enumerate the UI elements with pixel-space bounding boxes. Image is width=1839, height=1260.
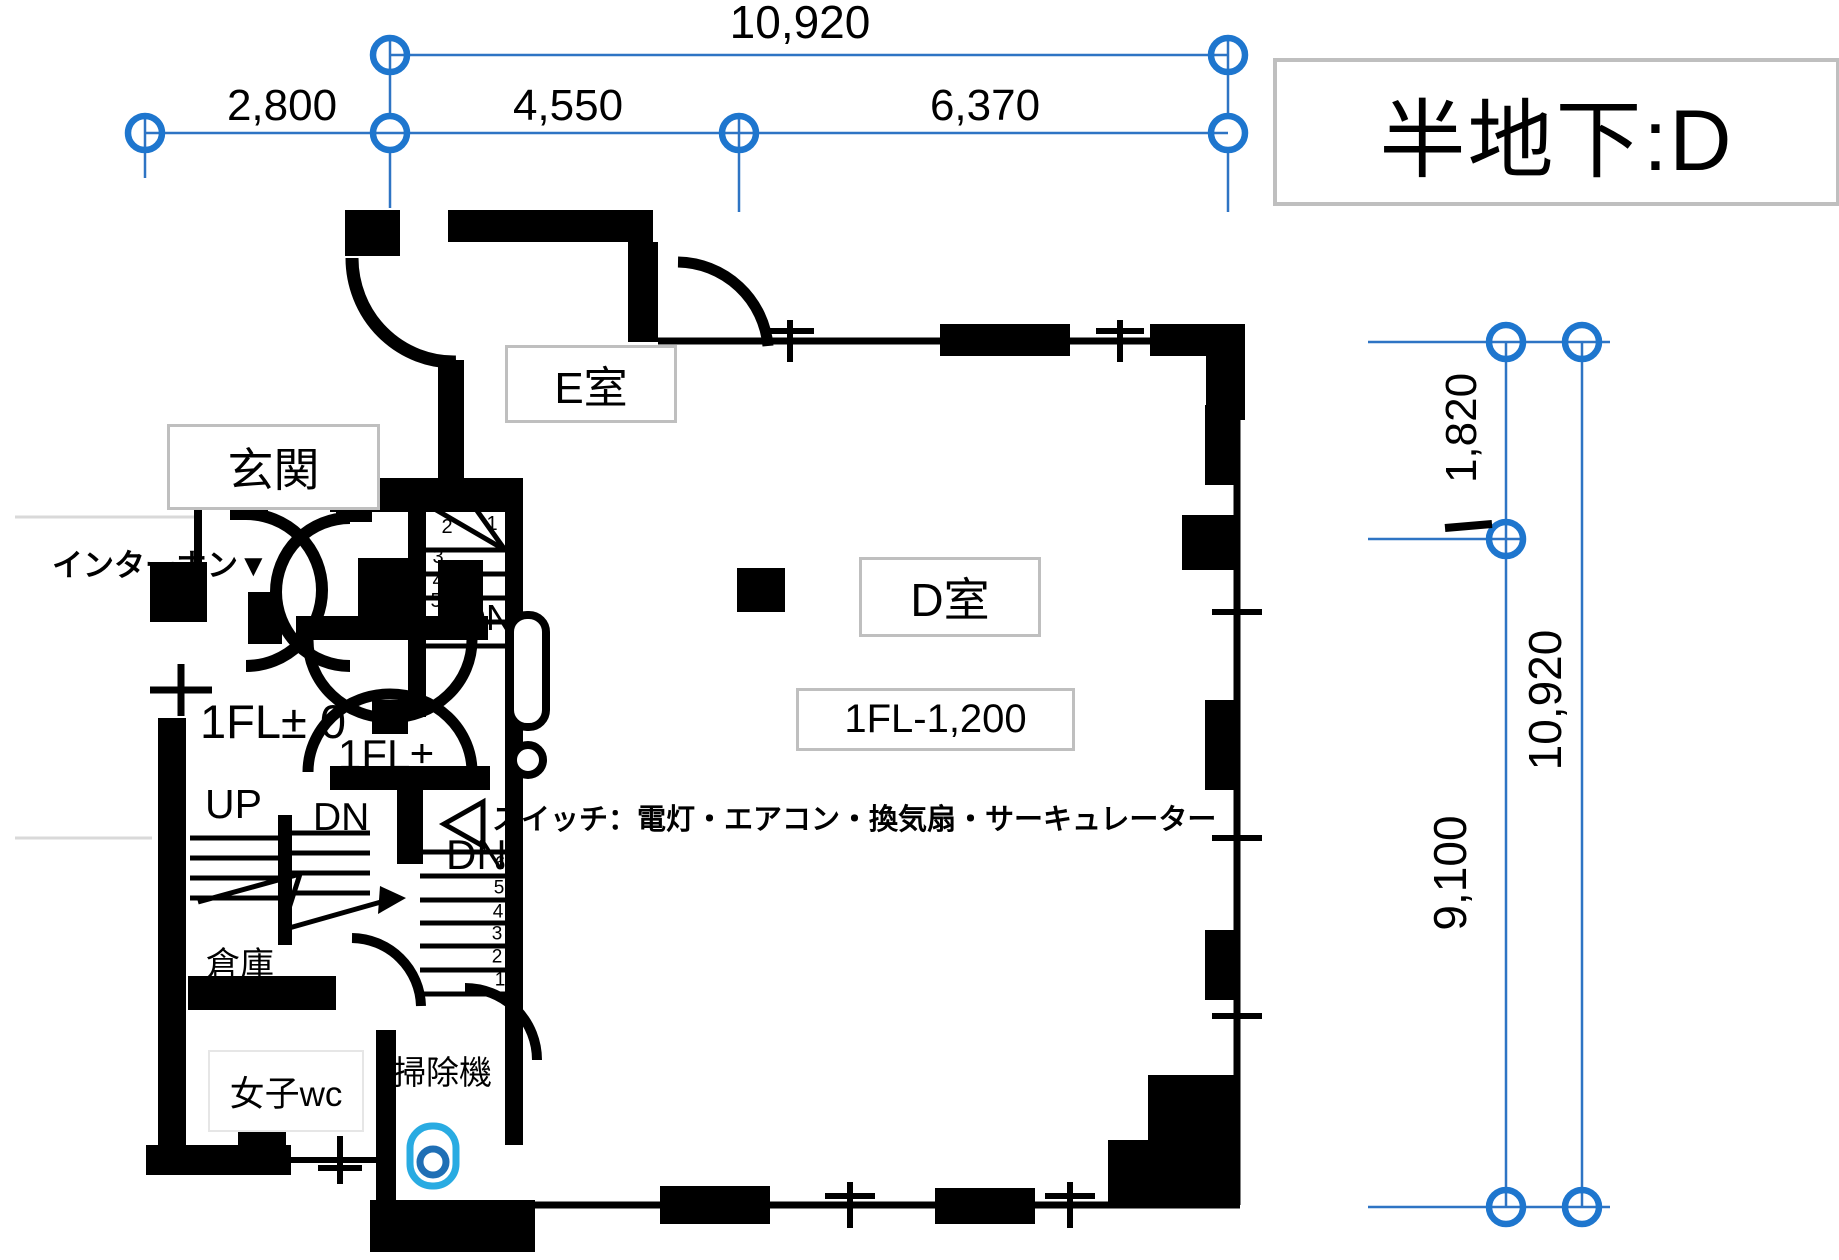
room-e-text: E室: [554, 352, 627, 416]
lower-stair-number: 6: [495, 855, 506, 874]
floor-plan: 10,920 2,800 4,550 6,370 半地下:D 1,820 9,1…: [0, 0, 1839, 1260]
dim-segment-4550: 4,550: [513, 84, 623, 128]
dn-label-upper: DN: [460, 600, 512, 636]
lower-stair-number: 5: [494, 879, 505, 898]
page-title: 半地下:D: [1380, 70, 1734, 195]
dim-right-9100: 9,100: [1427, 815, 1473, 930]
door-leaf-icon: [510, 615, 546, 775]
lower-stair-number: 4: [493, 903, 504, 922]
upper-stair-number: 1: [486, 514, 497, 534]
dimension-tick: [1445, 524, 1492, 528]
vacuum-symbol-icon: [410, 1126, 456, 1186]
floor-level-label-d: 1FL-1,200: [796, 688, 1075, 751]
switch-note-label: スイッチ：電灯・エアコン・換気扇・サーキュレーター: [492, 806, 1216, 835]
floor-level-vestibule-label: 1FL±: [338, 734, 433, 776]
room-d-text: D室: [910, 564, 989, 630]
upper-stair-number: 2: [441, 517, 452, 537]
dim-segment-6370: 6,370: [930, 84, 1040, 128]
room-entrance-text: 玄関: [228, 434, 320, 500]
storage-label: 倉庫: [206, 948, 274, 982]
room-label-e: E室: [505, 345, 677, 423]
floor-level-d-text: 1FL-1,200: [844, 697, 1026, 742]
upper-stair-number: 4: [432, 571, 443, 591]
lower-stair-number: 1: [495, 971, 506, 990]
lower-stair-number: 2: [492, 948, 503, 967]
cleaner-label: 掃除機: [393, 1056, 492, 1089]
room-label-entrance: 玄関: [167, 424, 380, 510]
dim-right-1820: 1,820: [1440, 373, 1484, 483]
room-wc-text: 女子wc: [230, 1066, 343, 1117]
upper-stair-number: 5: [430, 591, 441, 611]
title-block: 半地下:D: [1273, 58, 1839, 206]
upper-stair-number: 3: [432, 547, 443, 567]
intercom-label: インターホン▼: [52, 550, 269, 581]
room-label-wc: 女子wc: [208, 1050, 364, 1132]
room-label-d: D室: [859, 557, 1041, 637]
dim-right-10920: 10,920: [1522, 630, 1568, 771]
break-arrow-icon: [378, 886, 406, 914]
dim-segment-2800: 2,800: [227, 84, 337, 128]
floor-level-entrance-label: 1FL± 0: [200, 698, 346, 745]
lower-stair-number: 3: [492, 925, 503, 944]
dim-top-overall: 10,920: [730, 0, 871, 45]
upper-stair-number: 6: [436, 612, 447, 632]
dn-label-mid: DN: [313, 798, 369, 837]
up-label: UP: [205, 784, 262, 825]
